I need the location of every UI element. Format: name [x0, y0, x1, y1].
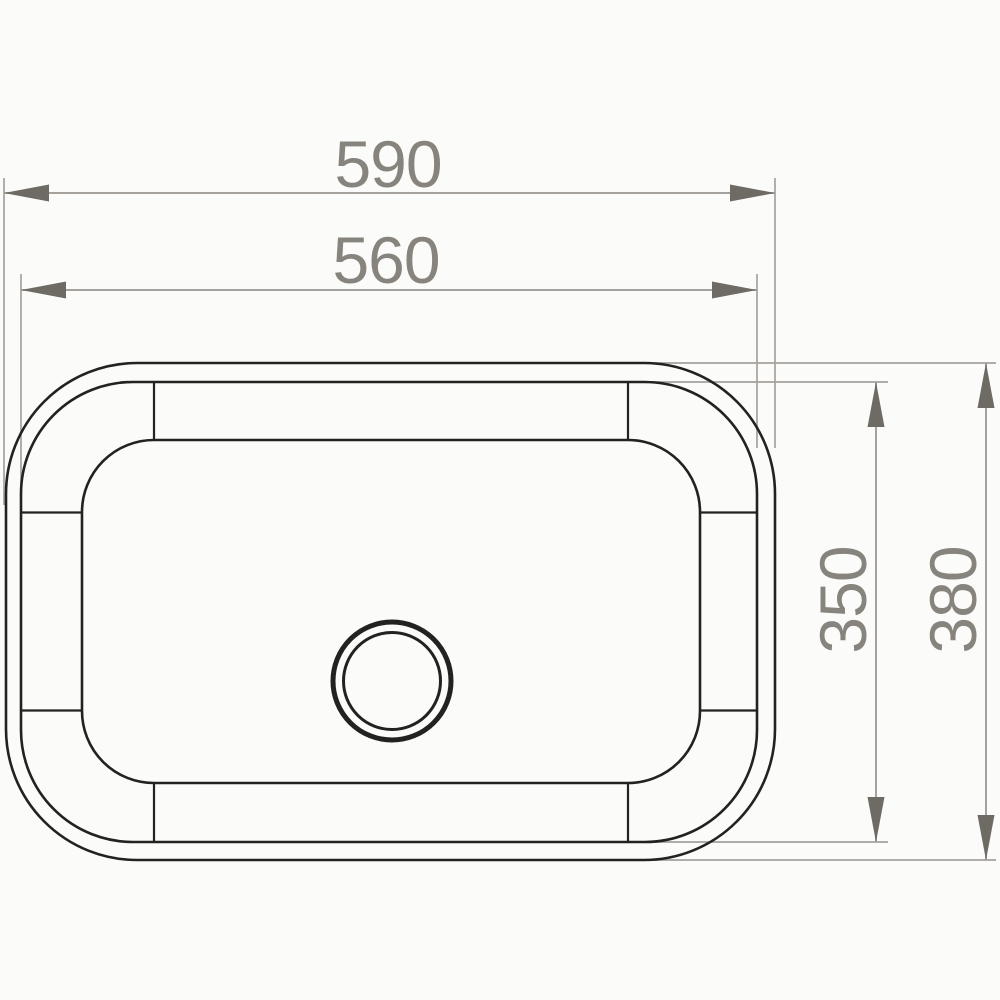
sink-inner-rim-outline [21, 382, 757, 842]
drain-inner-circle [344, 633, 441, 730]
sink-body [6, 363, 775, 860]
dim-label-outer-width: 590 [334, 127, 441, 201]
arrowhead-up-icon [868, 382, 885, 427]
arrowhead-right-icon [712, 282, 757, 299]
arrowhead-up-icon [978, 363, 995, 408]
arrowhead-left-icon [4, 185, 49, 202]
arrowhead-down-icon [978, 815, 995, 860]
sink-dimension-drawing: 590 560 350 380 [0, 0, 1000, 1000]
dim-label-inner-width: 560 [332, 223, 439, 297]
dim-label-inner-height: 350 [806, 546, 880, 653]
arrowhead-left-icon [21, 282, 66, 299]
arrowhead-down-icon [868, 797, 885, 842]
drain-outer-circle [333, 622, 451, 740]
sink-outer-rim-outline [6, 363, 775, 860]
sink-top-view-diagram: 590 560 350 380 [0, 0, 1000, 1000]
dim-label-outer-height: 380 [916, 546, 990, 653]
arrowhead-right-icon [730, 185, 775, 202]
sink-bowl-outline [82, 440, 700, 783]
dimension-inner-height: 350 [620, 382, 888, 842]
